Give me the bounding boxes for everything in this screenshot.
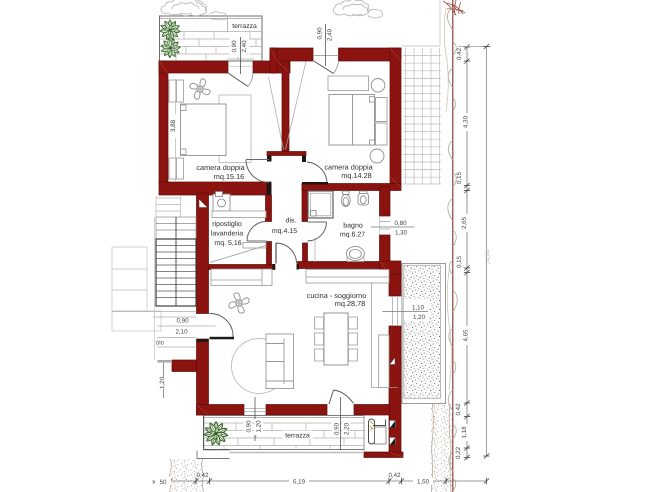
svg-text:1,50: 1,50 (417, 479, 430, 486)
svg-text:6,19: 6,19 (293, 479, 306, 486)
svg-text:0,42: 0,42 (455, 403, 462, 416)
svg-text:0,42: 0,42 (388, 472, 401, 479)
svg-text:0,90: 0,90 (246, 420, 253, 433)
svg-text:lavanderia: lavanderia (211, 230, 243, 238)
svg-text:0,90: 0,90 (317, 27, 324, 40)
svg-text:1,30: 1,30 (395, 230, 408, 237)
svg-text:1,20: 1,20 (256, 420, 263, 433)
svg-text:2,40: 2,40 (241, 40, 248, 53)
svg-text:4,30: 4,30 (463, 115, 470, 128)
svg-text:0,42: 0,42 (456, 47, 463, 60)
svg-text:0,90: 0,90 (176, 318, 189, 325)
svg-text:0,90: 0,90 (231, 40, 238, 53)
svg-text:2,10: 2,10 (175, 329, 188, 336)
svg-text:0,42: 0,42 (196, 472, 209, 479)
svg-text:1,20: 1,20 (159, 376, 166, 389)
svg-text:50: 50 (160, 479, 167, 486)
svg-text:1,20: 1,20 (413, 314, 426, 321)
svg-text:terrazza: terrazza (285, 433, 310, 440)
svg-text:mq.14.28: mq.14.28 (341, 171, 371, 180)
svg-text:bagno: bagno (343, 222, 363, 230)
svg-text:camera doppia: camera doppia (196, 163, 245, 172)
svg-text:mq.4.15: mq.4.15 (272, 228, 297, 235)
svg-text:0,22: 0,22 (455, 446, 462, 459)
svg-text:3,88: 3,88 (170, 119, 177, 132)
svg-text:0,15: 0,15 (456, 171, 463, 184)
svg-text:mq.15.16: mq.15.16 (214, 172, 244, 181)
svg-text:4,65: 4,65 (463, 329, 470, 342)
svg-text:1,10: 1,10 (412, 305, 425, 312)
svg-text:0,90: 0,90 (334, 422, 341, 435)
svg-text:mq. 5,16: mq. 5,16 (214, 240, 241, 247)
svg-text:1,18: 1,18 (461, 426, 468, 439)
svg-text:olo: olo (156, 340, 165, 347)
svg-text:terrazza: terrazza (232, 23, 257, 30)
svg-text:14,04: 14,04 (485, 249, 492, 265)
svg-text:2,65: 2,65 (461, 216, 468, 229)
svg-text:0,80: 0,80 (394, 220, 407, 227)
svg-text:dis.: dis. (286, 217, 297, 225)
svg-text:mq.28,78: mq.28,78 (335, 299, 365, 308)
svg-text:2,20: 2,20 (344, 422, 351, 435)
svg-text:ripostiglio: ripostiglio (212, 220, 242, 228)
svg-text:0,15: 0,15 (456, 255, 463, 268)
svg-text:mq.6.27: mq.6.27 (340, 232, 365, 239)
svg-text:2,40: 2,40 (327, 28, 334, 41)
